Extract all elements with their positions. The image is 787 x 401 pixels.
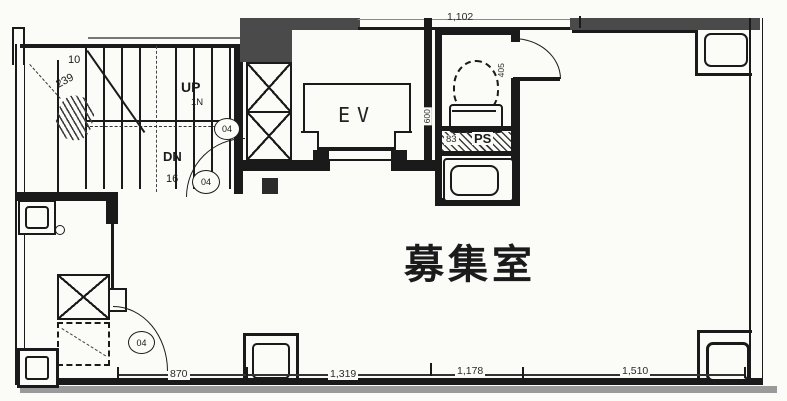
dim-tick <box>246 367 248 378</box>
ps-dim-83: 83 <box>444 135 459 145</box>
column-bottom-left-inner <box>25 356 49 380</box>
dim-bottom-870: 870 <box>168 369 190 380</box>
column-notch-tr-v <box>695 30 698 75</box>
dim-tick <box>430 363 432 376</box>
door-tag-label: 04 <box>136 338 146 348</box>
closet-x-box <box>57 274 110 320</box>
door-tag-circle: 04 <box>214 118 240 140</box>
door-stop-circle <box>55 225 65 235</box>
toilet-tank-line <box>452 110 496 112</box>
wall-top-left-thin-line <box>88 37 240 39</box>
floor-plan: 10 239 UP 1N DN 16 04 04 04 EV 600 405 8… <box>0 0 787 401</box>
column-notch-bc-r <box>296 333 299 378</box>
ev-shaft-dark-fill <box>240 28 292 62</box>
pillar-dark-square <box>262 178 278 194</box>
dim-bottom-1178: 1,178 <box>455 366 485 377</box>
closet-dashed-box <box>57 322 110 366</box>
stair-dn-count-label: 16 <box>166 174 178 185</box>
column-notch-br-h <box>697 330 752 333</box>
toilet-door-arc <box>513 38 561 79</box>
room-label: 募集室 <box>404 245 536 285</box>
toilet-dim-405: 405 <box>497 61 506 79</box>
door-tag-label: 04 <box>222 124 232 134</box>
ev-door-sill <box>329 149 391 161</box>
stair-dn-label: DN <box>163 150 182 163</box>
wall-bottom-shadow <box>20 386 777 393</box>
ps-bottom-wall <box>435 151 520 156</box>
wall-top-left-wing <box>20 44 242 48</box>
ev-label: EV <box>338 105 376 125</box>
ev-shaft-right-wall <box>424 18 432 170</box>
wall-top-right-segment <box>570 18 760 30</box>
wall-bottom <box>15 378 762 385</box>
door-tag-circle: 04 <box>192 170 220 194</box>
toilet-top-wall <box>442 30 520 35</box>
stair-tread <box>139 48 141 189</box>
column-mid-left-inner <box>25 206 49 229</box>
ev-south-wall-right <box>391 160 435 171</box>
wall-closet-vertical <box>111 224 114 290</box>
stair-up-count-label: 1N <box>191 98 203 108</box>
dim-tick <box>744 367 746 378</box>
toilet-left-wall <box>435 30 442 206</box>
column-notch-tr-h <box>695 73 752 76</box>
dim-tick-top <box>579 16 581 28</box>
dim-tick <box>522 367 524 378</box>
dim-top-1102: 1,102 <box>445 12 475 23</box>
door-tag-label: 04 <box>201 177 211 187</box>
stair-tread <box>175 48 177 189</box>
dim-tick <box>117 367 119 378</box>
stair-up-label: UP <box>181 80 200 94</box>
column-notch-bc-t <box>243 333 299 336</box>
column-top-right <box>704 33 748 67</box>
dim-bottom-1319: 1,319 <box>328 369 358 380</box>
stair-dim-a-label: 10 <box>68 55 80 66</box>
wall-hall-stub <box>106 192 118 224</box>
ev-south-wall-left <box>240 160 330 171</box>
stair-center-line <box>156 46 157 192</box>
stair-landing-line-dashed <box>85 126 231 127</box>
ps-label: PS <box>472 132 493 145</box>
stair-landing-line <box>85 120 231 122</box>
dim-bottom-1510: 1,510 <box>620 366 650 377</box>
pipe-shaft-x-box <box>246 111 292 161</box>
stair-tread <box>121 48 123 189</box>
basin-inner <box>450 165 499 196</box>
ev-cab-notch-left <box>301 131 319 150</box>
wall-top-inner-face <box>572 30 697 33</box>
ev-cab-notch-right <box>394 131 412 150</box>
wall-top-left-stub <box>12 27 25 65</box>
pipe-shaft-x-box <box>246 62 292 113</box>
toilet-dim-600: 600 <box>423 107 432 125</box>
column-notch-br-v <box>697 330 700 378</box>
door-tag-circle: 04 <box>128 331 155 354</box>
stair-tread <box>103 48 105 189</box>
toilet-door-leaf <box>513 77 560 81</box>
dim-line-bottom <box>118 374 746 376</box>
